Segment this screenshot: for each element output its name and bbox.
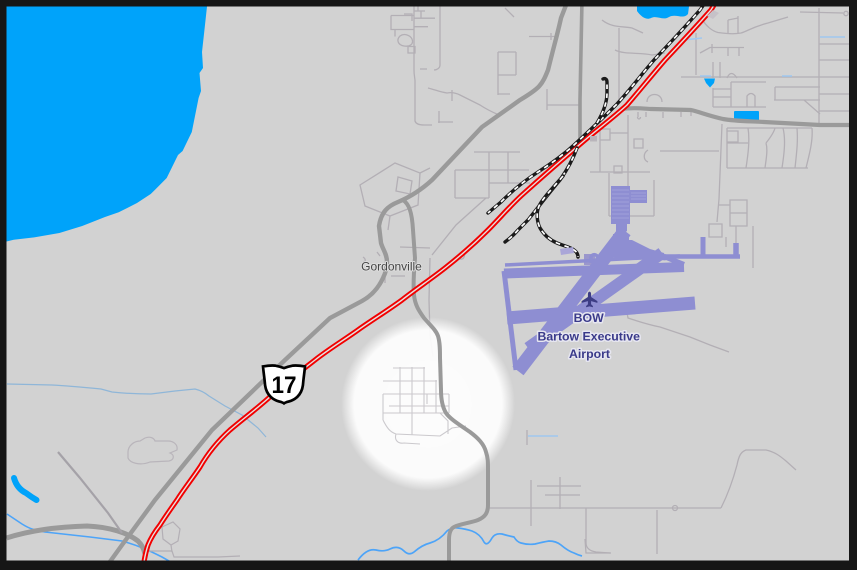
svg-text:17: 17 xyxy=(272,372,297,399)
svg-text:Gordonville: Gordonville xyxy=(361,260,422,274)
svg-text:Bartow Executive: Bartow Executive xyxy=(537,330,640,344)
svg-text:Airport: Airport xyxy=(569,347,610,361)
svg-text:BOW: BOW xyxy=(574,311,604,325)
